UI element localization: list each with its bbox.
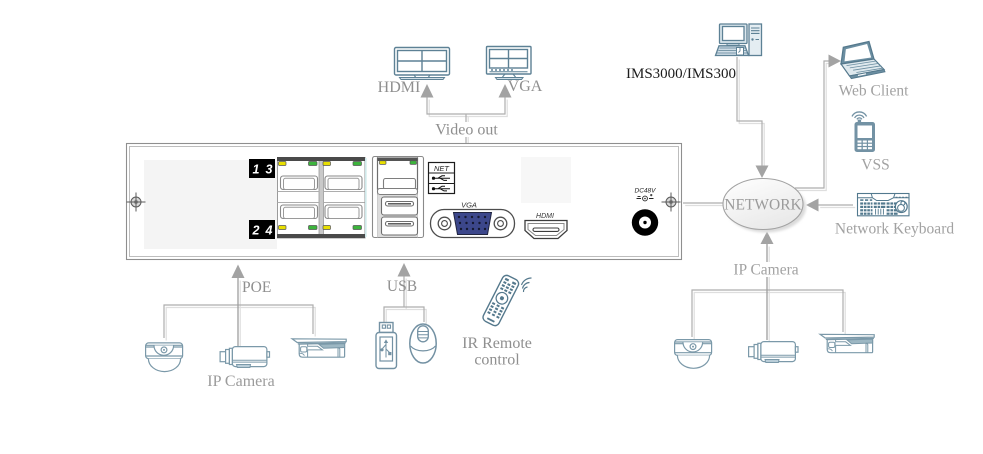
svg-text:USB: USB xyxy=(387,278,417,295)
svg-text:3: 3 xyxy=(266,163,273,177)
svg-text:Network Keyboard: Network Keyboard xyxy=(835,221,954,238)
svg-text:IP Camera: IP Camera xyxy=(733,262,798,279)
svg-text:4: 4 xyxy=(265,224,273,238)
svg-text:1: 1 xyxy=(253,163,260,177)
svg-text:2: 2 xyxy=(252,224,260,238)
svg-text:POE: POE xyxy=(242,279,271,296)
svg-text:control: control xyxy=(474,352,520,369)
svg-text:Web Client: Web Client xyxy=(839,83,909,100)
svg-text:HDMI: HDMI xyxy=(378,79,421,96)
svg-text:Video out: Video out xyxy=(435,122,498,139)
svg-text:HDMI: HDMI xyxy=(536,213,554,220)
svg-text:DC48V: DC48V xyxy=(635,188,657,195)
svg-text:NET: NET xyxy=(434,164,450,173)
svg-text:VSS: VSS xyxy=(861,157,889,174)
svg-text:IP Camera: IP Camera xyxy=(207,373,274,390)
svg-text:VGA: VGA xyxy=(461,201,477,210)
svg-text:IR Remote: IR Remote xyxy=(462,335,532,352)
svg-text:NETWORK: NETWORK xyxy=(724,197,802,214)
svg-text:IMS3000/IMS300: IMS3000/IMS300 xyxy=(626,66,736,82)
svg-text:VGA: VGA xyxy=(508,78,543,95)
